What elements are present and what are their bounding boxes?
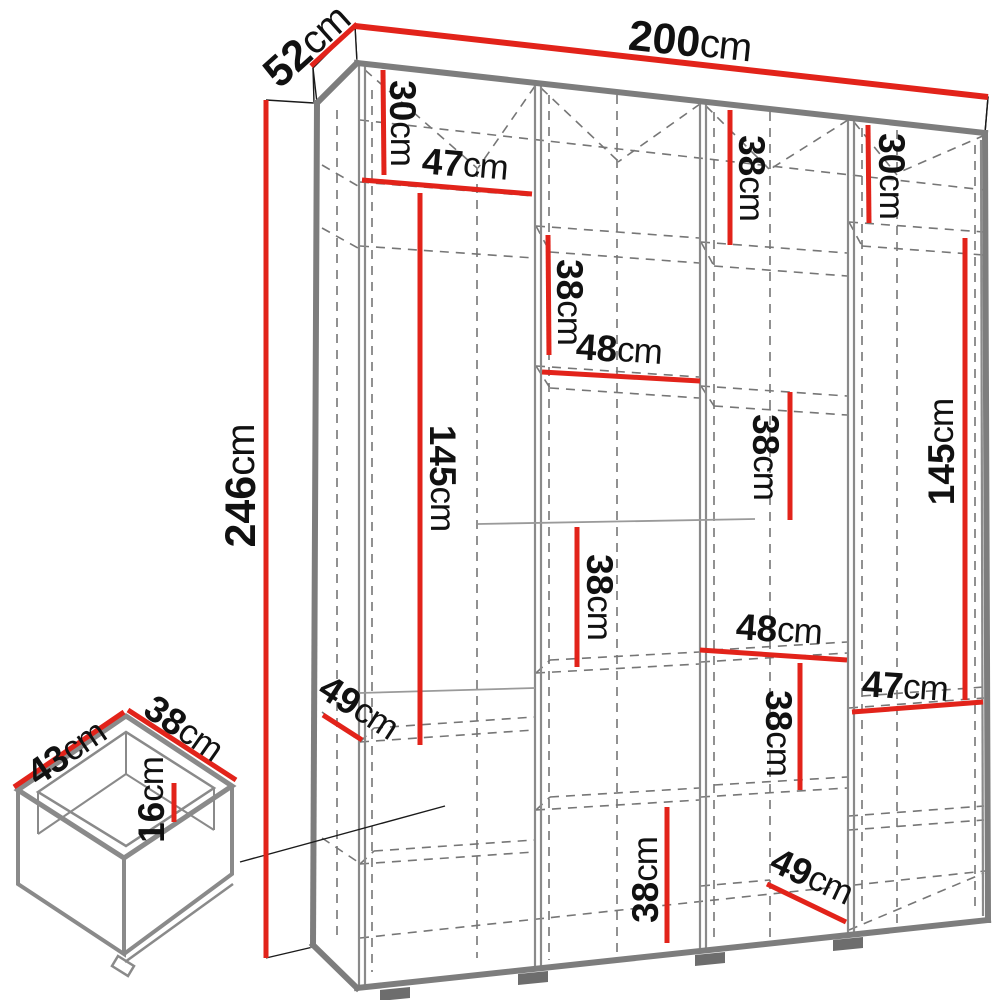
label-drawer-43cm: 43cm bbox=[19, 711, 113, 793]
label-145cm-left: 145cm bbox=[423, 425, 464, 531]
wardrobe-feet bbox=[380, 937, 863, 1000]
label-47cm-col4: 47cm bbox=[861, 663, 949, 710]
label-38cm-col3-mid: 38cm bbox=[746, 414, 787, 500]
wardrobe-dimension-diagram: 200cm 52cm 246cm 30cm 47cm 38cm 38cm 30c… bbox=[0, 0, 1000, 1000]
label-38cm-col2-bottom: 38cm bbox=[625, 837, 666, 923]
dim-line-48-col3 bbox=[700, 650, 847, 660]
label-38cm-col2-mid: 38cm bbox=[580, 554, 621, 640]
label-38cm-col3-top: 38cm bbox=[732, 135, 773, 221]
dim-line-38-col2-top bbox=[548, 235, 549, 355]
dim-line-48-col2 bbox=[542, 372, 700, 381]
dim-line-30-right bbox=[868, 125, 869, 223]
label-30cm-right: 30cm bbox=[872, 133, 913, 219]
label-38cm-col3-bottom: 38cm bbox=[759, 690, 800, 776]
label-drawer-16cm: 16cm bbox=[131, 757, 172, 843]
label-47cm-top-left: 47cm bbox=[420, 140, 509, 188]
label-49cm-bottom: 49cm bbox=[764, 839, 859, 912]
label-145cm-right: 145cm bbox=[921, 399, 962, 505]
label-30cm-left: 30cm bbox=[383, 80, 424, 166]
drawer-leader-line bbox=[240, 806, 445, 862]
label-48cm-col2: 48cm bbox=[575, 326, 663, 373]
label-48cm-col3: 48cm bbox=[735, 606, 823, 653]
label-height-246cm: 246cm bbox=[217, 424, 265, 547]
